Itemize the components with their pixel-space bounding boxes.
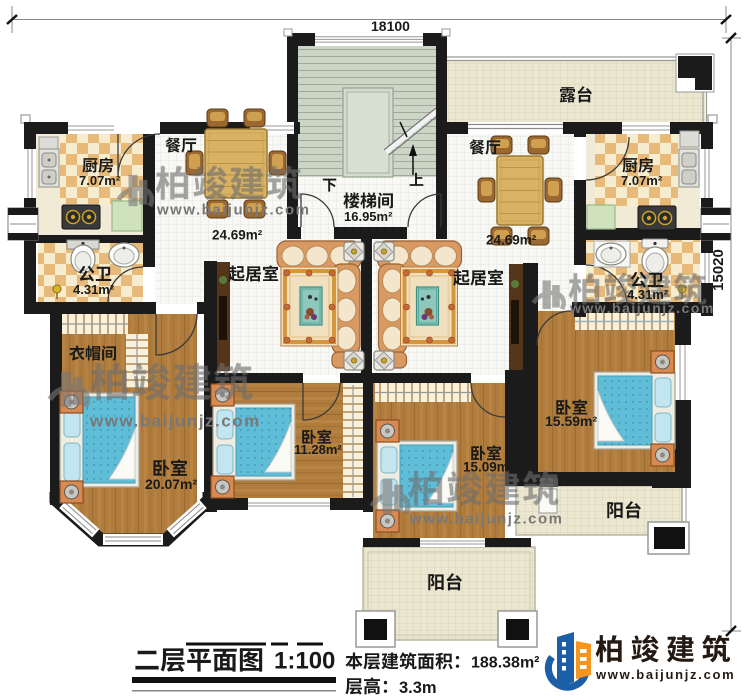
svg-text:24.69m²: 24.69m²: [486, 233, 537, 248]
svg-text:www.baijunjz.com: www.baijunjz.com: [595, 667, 735, 682]
svg-text:4.31m²: 4.31m²: [73, 282, 115, 297]
svg-text:11.28m²: 11.28m²: [294, 442, 342, 457]
svg-text:1:100: 1:100: [274, 648, 335, 675]
svg-text:20.07m²: 20.07m²: [145, 476, 197, 492]
svg-text:4.31m²: 4.31m²: [627, 287, 669, 302]
svg-text:7.07m²: 7.07m²: [79, 173, 121, 188]
svg-text:7.07m²: 7.07m²: [621, 173, 663, 188]
svg-text:15.59m²: 15.59m²: [545, 413, 597, 429]
svg-text:www.baijunjz.com: www.baijunjz.com: [569, 300, 715, 316]
svg-text:18100: 18100: [371, 18, 410, 34]
svg-text:www.baijunjz.com: www.baijunjz.com: [156, 202, 310, 219]
svg-text:15.09m²: 15.09m²: [463, 460, 514, 475]
svg-text:www.baijunjz.com: www.baijunjz.com: [89, 411, 261, 430]
svg-text:15020: 15020: [710, 249, 727, 291]
svg-text:www.baijunjz.com: www.baijunjz.com: [409, 511, 563, 528]
svg-text:3.3m: 3.3m: [399, 679, 437, 697]
svg-text:16.95m²: 16.95m²: [344, 209, 393, 224]
svg-text:24.69m²: 24.69m²: [212, 228, 263, 243]
svg-text:188.38m²: 188.38m²: [471, 655, 540, 672]
